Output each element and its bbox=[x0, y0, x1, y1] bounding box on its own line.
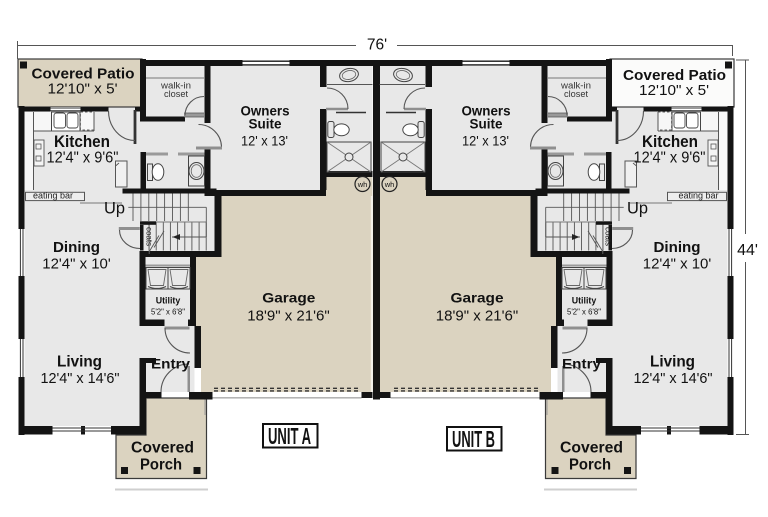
svg-text:Porch: Porch bbox=[140, 457, 182, 474]
svg-text:Dining: Dining bbox=[53, 239, 100, 256]
svg-text:closet: closet bbox=[164, 89, 189, 99]
svg-text:eating bar: eating bar bbox=[679, 191, 719, 201]
svg-text:18'9" x 21'6": 18'9" x 21'6" bbox=[247, 309, 330, 325]
svg-text:Living: Living bbox=[650, 354, 695, 371]
svg-text:Covered: Covered bbox=[131, 440, 194, 457]
svg-text:Porch: Porch bbox=[569, 457, 611, 474]
svg-text:wh: wh bbox=[384, 180, 395, 189]
svg-text:Garage: Garage bbox=[451, 290, 504, 306]
svg-text:5'2" x 6'8": 5'2" x 6'8" bbox=[151, 307, 185, 317]
svg-text:Utility: Utility bbox=[572, 296, 597, 307]
svg-text:12'4" x 9'6": 12'4" x 9'6" bbox=[634, 150, 706, 167]
svg-text:closet: closet bbox=[564, 89, 589, 99]
svg-text:Covered Patio: Covered Patio bbox=[32, 67, 135, 83]
svg-text:44': 44' bbox=[737, 242, 758, 259]
svg-text:12' x 13': 12' x 13' bbox=[241, 133, 288, 149]
svg-text:12'4" x 10': 12'4" x 10' bbox=[643, 257, 712, 273]
svg-text:eating bar: eating bar bbox=[33, 191, 73, 201]
svg-text:12' x 13': 12' x 13' bbox=[462, 133, 509, 149]
svg-text:coats: coats bbox=[604, 227, 613, 246]
svg-text:Utility: Utility bbox=[156, 296, 181, 307]
svg-text:Up: Up bbox=[627, 200, 648, 218]
svg-text:UNIT B: UNIT B bbox=[452, 426, 495, 452]
svg-text:wh: wh bbox=[357, 180, 368, 189]
svg-text:76': 76' bbox=[367, 37, 387, 54]
svg-text:Suite: Suite bbox=[249, 116, 282, 132]
svg-text:12'4" x 14'6": 12'4" x 14'6" bbox=[41, 370, 120, 387]
svg-text:5'2" x 6'8": 5'2" x 6'8" bbox=[567, 307, 601, 317]
svg-text:Kitchen: Kitchen bbox=[642, 132, 698, 151]
svg-text:Covered: Covered bbox=[560, 440, 623, 457]
svg-text:12'4" x 14'6": 12'4" x 14'6" bbox=[634, 370, 713, 387]
svg-text:Garage: Garage bbox=[262, 290, 315, 306]
svg-text:Up: Up bbox=[104, 200, 125, 218]
svg-text:18'9" x 21'6": 18'9" x 21'6" bbox=[436, 309, 519, 325]
svg-text:Entry: Entry bbox=[562, 357, 602, 372]
svg-text:Entry: Entry bbox=[151, 357, 191, 372]
svg-text:coats: coats bbox=[144, 227, 153, 246]
svg-text:12'10" x 5': 12'10" x 5' bbox=[639, 83, 709, 99]
svg-text:Covered Patio: Covered Patio bbox=[623, 68, 726, 84]
svg-text:Suite: Suite bbox=[470, 116, 503, 132]
svg-text:Living: Living bbox=[57, 354, 102, 371]
svg-text:UNIT A: UNIT A bbox=[268, 423, 311, 449]
svg-text:Dining: Dining bbox=[654, 239, 701, 256]
svg-text:12'10" x 5': 12'10" x 5' bbox=[48, 82, 118, 98]
svg-text:Kitchen: Kitchen bbox=[54, 132, 110, 151]
svg-text:12'4" x 9'6": 12'4" x 9'6" bbox=[47, 150, 119, 167]
svg-text:12'4" x 10': 12'4" x 10' bbox=[42, 257, 111, 273]
